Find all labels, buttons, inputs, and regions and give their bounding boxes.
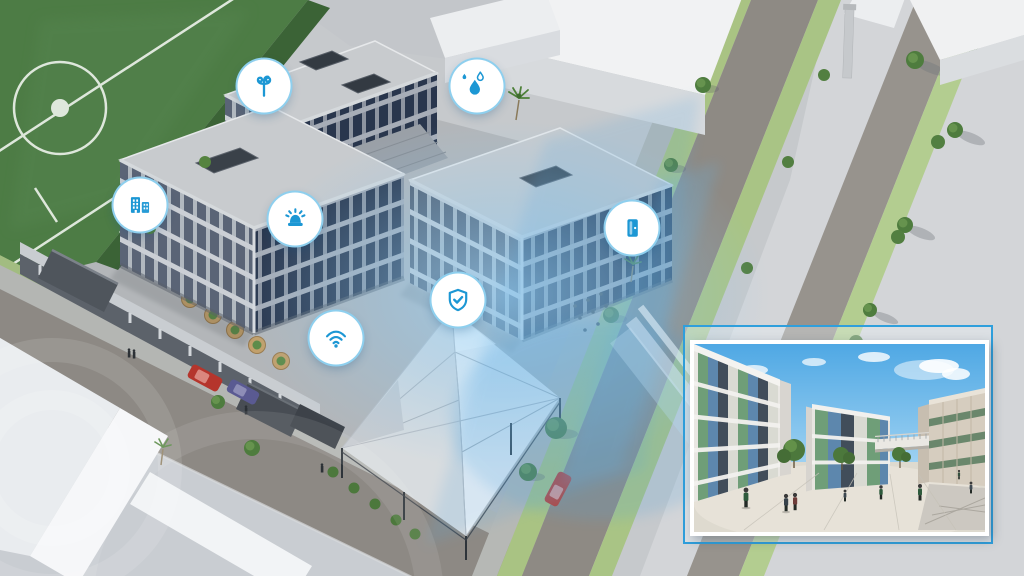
- smart-campus-visualization: [0, 0, 1024, 576]
- buildings-icon: [126, 191, 155, 220]
- shield-check-icon: [444, 286, 473, 315]
- hotspot-alarm[interactable]: [269, 193, 322, 246]
- inset-building-right: [918, 388, 985, 530]
- door-access-icon: [618, 214, 647, 243]
- wifi-icon: [322, 324, 351, 353]
- street-view-inset[interactable]: [683, 325, 993, 544]
- hotspot-buildings[interactable]: [114, 179, 167, 232]
- street-view-photo: [694, 344, 985, 532]
- hotspot-access[interactable]: [606, 202, 659, 255]
- alarm-beacon-icon: [281, 205, 310, 234]
- street-view-photo-card: [690, 340, 989, 536]
- hotspot-water[interactable]: [451, 60, 504, 113]
- hotspot-wifi[interactable]: [310, 312, 363, 365]
- fountain-plant-icon: [250, 72, 279, 101]
- hotspot-landscape[interactable]: [238, 60, 291, 113]
- hotspot-security[interactable]: [432, 274, 485, 327]
- water-drops-icon: [463, 72, 492, 101]
